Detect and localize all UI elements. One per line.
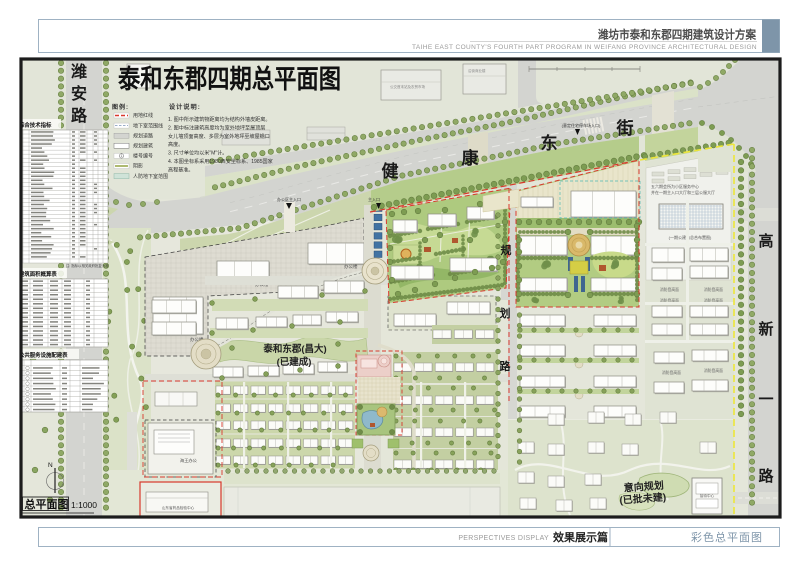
svg-text:人防地下室范围: 人防地下室范围 bbox=[133, 173, 168, 180]
svg-text:(一期公建为总合布置图): (一期公建为总合布置图) bbox=[669, 234, 712, 240]
svg-text:办公区主入口: 办公区主入口 bbox=[277, 196, 301, 202]
svg-text:安: 安 bbox=[71, 84, 87, 103]
svg-text:东: 东 bbox=[541, 133, 558, 153]
svg-text:消防登高面: 消防登高面 bbox=[660, 287, 679, 292]
svg-text:1. 图中所示建筑物距离均为结构外墙皮距离。: 1. 图中所示建筑物距离均为结构外墙皮距离。 bbox=[168, 116, 270, 123]
svg-text:高: 高 bbox=[758, 232, 773, 250]
svg-text:康: 康 bbox=[462, 148, 480, 168]
svg-text:规: 规 bbox=[501, 243, 512, 257]
svg-text:泰和东郡四期总平面图: 泰和东郡四期总平面图 bbox=[118, 64, 341, 94]
svg-text:设计说明:: 设计说明: bbox=[169, 103, 201, 111]
svg-text:用地红线: 用地红线 bbox=[133, 112, 153, 119]
svg-text:潍: 潍 bbox=[71, 62, 87, 81]
svg-text:总平面图: 总平面图 bbox=[25, 497, 69, 511]
svg-text:沿街商业楼: 沿街商业楼 bbox=[468, 68, 486, 73]
svg-text:新: 新 bbox=[758, 320, 773, 338]
svg-text:公交首末站及农贸市场: 公交首末站及农贸市场 bbox=[390, 84, 425, 89]
svg-text:N: N bbox=[48, 462, 53, 469]
svg-text:路: 路 bbox=[71, 106, 88, 125]
svg-text:消防登高面: 消防登高面 bbox=[704, 368, 723, 373]
svg-text:健: 健 bbox=[382, 161, 399, 181]
svg-text:五六期会所为小区服务中心: 五六期会所为小区服务中心 bbox=[651, 183, 699, 189]
svg-text:规划道路: 规划道路 bbox=[133, 132, 153, 139]
svg-text:1:1000: 1:1000 bbox=[71, 500, 97, 510]
svg-text:注: 指标以相关政府批复为准: 注: 指标以相关政府批复为准 bbox=[66, 263, 109, 268]
svg-text:潍坊市泰和东郡四期建筑设计方案: 潍坊市泰和东郡四期建筑设计方案 bbox=[598, 28, 756, 42]
svg-text:建筑面积概算表: 建筑面积概算表 bbox=[18, 270, 57, 278]
svg-text:消防登高面: 消防登高面 bbox=[704, 287, 723, 292]
svg-text:图例:: 图例: bbox=[112, 103, 129, 111]
svg-text:综合技术指标: 综合技术指标 bbox=[19, 121, 52, 129]
svg-text:高度。: 高度。 bbox=[168, 141, 183, 148]
svg-text:女儿墙顶面高度、多层为室外地坪至坡屋檐口: 女儿墙顶面高度、多层为室外地坪至坡屋檐口 bbox=[168, 133, 270, 140]
svg-text:1: 1 bbox=[121, 154, 123, 158]
svg-text:TAIHE EAST COUNTY'S FOURTH PAR: TAIHE EAST COUNTY'S FOURTH PART PROGRAM … bbox=[412, 44, 757, 51]
svg-text:彩色总平面图: 彩色总平面图 bbox=[691, 530, 763, 544]
svg-text:(意定住宅停车场入口): (意定住宅停车场入口) bbox=[562, 122, 601, 128]
svg-text:规划建筑: 规划建筑 bbox=[133, 143, 153, 150]
svg-text:街: 街 bbox=[616, 118, 634, 138]
svg-text:主入口: 主入口 bbox=[368, 196, 380, 202]
svg-text:2. 图中标注建筑高度均为室外地坪至屋顶层: 2. 图中标注建筑高度均为室外地坪至屋顶层 bbox=[168, 124, 265, 131]
svg-text:阴影: 阴影 bbox=[133, 163, 143, 170]
svg-text:公共服务设施配建表: 公共服务设施配建表 bbox=[19, 351, 68, 359]
svg-text:划: 划 bbox=[500, 306, 511, 320]
svg-text:路: 路 bbox=[500, 359, 512, 373]
svg-text:并在一期主入口大厅和三层公服大厅: 并在一期主入口大厅和三层公服大厅 bbox=[651, 189, 715, 195]
svg-text:接待中心: 接待中心 bbox=[700, 493, 715, 498]
svg-text:路: 路 bbox=[758, 467, 774, 485]
svg-text:效果展示篇: 效果展示篇 bbox=[553, 530, 608, 544]
svg-text:3. 尺寸单位均以米"M"计。: 3. 尺寸单位均以米"M"计。 bbox=[168, 150, 227, 157]
svg-text:楼号编号: 楼号编号 bbox=[133, 153, 153, 160]
svg-text:4. 本图坐标系采用1980西安坐标系、1985国家: 4. 本图坐标系采用1980西安坐标系、1985国家 bbox=[168, 158, 273, 165]
svg-text:(已建成): (已建成) bbox=[277, 356, 312, 368]
svg-text:泰和东郡(昌大): 泰和东郡(昌大) bbox=[262, 343, 326, 355]
svg-text:山东省药品检验中心: 山东省药品检验中心 bbox=[162, 505, 195, 510]
svg-text:地下室范围线: 地下室范围线 bbox=[133, 122, 163, 129]
svg-text:消防登高面: 消防登高面 bbox=[662, 370, 681, 375]
svg-text:高程基准。: 高程基准。 bbox=[168, 166, 193, 173]
svg-text:一: 一 bbox=[758, 391, 773, 408]
svg-text:办公楼: 办公楼 bbox=[344, 263, 358, 270]
svg-text:PERSPECTIVES DISPLAY: PERSPECTIVES DISPLAY bbox=[458, 535, 549, 542]
svg-text:海王办公: 海王办公 bbox=[180, 457, 198, 464]
